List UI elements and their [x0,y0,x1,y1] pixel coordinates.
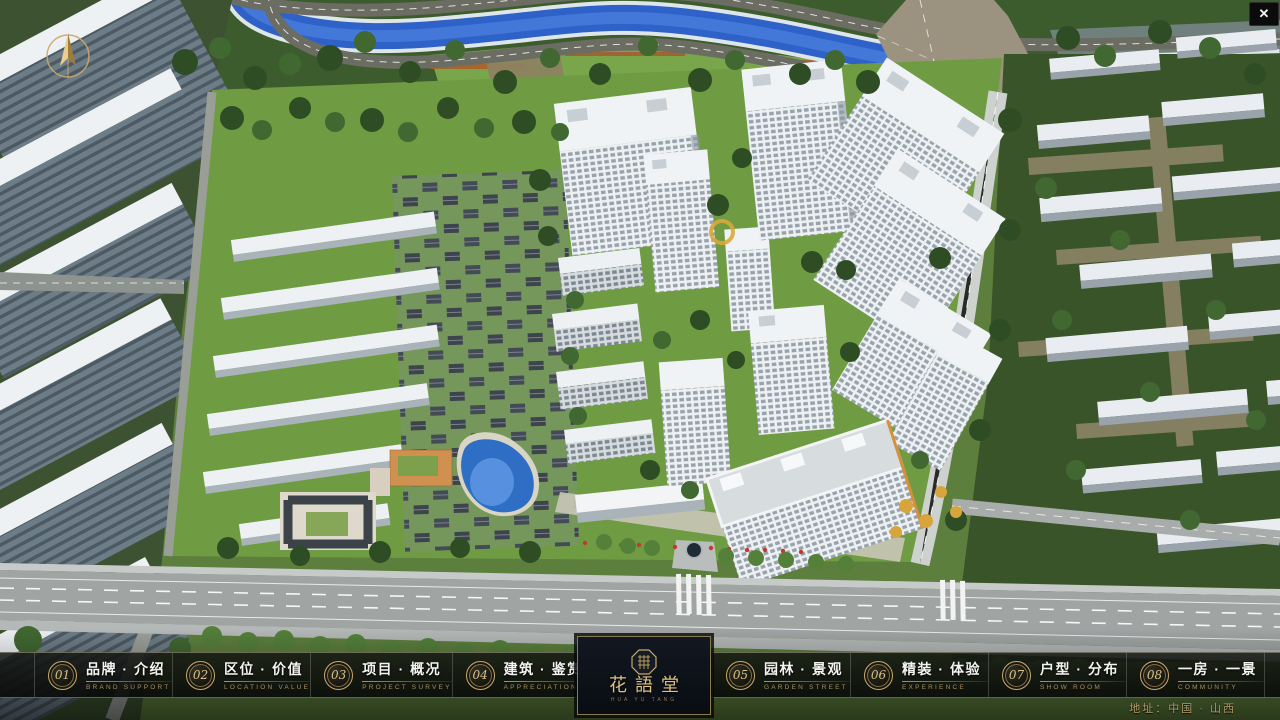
nav-group-right: 05 园林 · 景观GARDEN STREET 06 精装 · 体验EXPERI… [712,653,1280,697]
gold-rule [764,681,850,682]
nav-item-brand[interactable]: 01 品牌 · 介绍BRAND SUPPORT [34,653,172,697]
nav-item-garden[interactable]: 05 园林 · 景观GARDEN STREET [712,653,850,697]
nav-label-cn: 区位 · 价值 [224,659,310,679]
nav-item-views[interactable]: 08 一房 · 一景COMMUNITY [1126,653,1265,697]
nav-badge-06: 06 [864,661,893,690]
nav-label-cn: 精装 · 体验 [902,659,988,679]
gold-rule [1040,681,1126,682]
nav-badge-02: 02 [186,661,215,690]
gold-rule [902,681,988,682]
nav-label-cn: 户型 · 分布 [1040,659,1126,679]
logo-title: 花語堂 [601,677,687,695]
address-text: 地址：中国 · 山西 [1129,700,1236,716]
presentation-app: ✕ 01 品牌 · 介绍BRAND SUPPORT 02 区位 · 价值LOCA… [0,0,1280,720]
entrance-fountain [686,542,702,558]
nav-label-cn: 园林 · 景观 [764,659,850,679]
nav-label-cn: 品牌 · 介绍 [86,659,172,679]
nav-badge-01: 01 [48,661,77,690]
seal-icon [631,649,657,675]
gold-rule [86,681,172,682]
nav-group-left: 01 品牌 · 介绍BRAND SUPPORT 02 区位 · 价值LOCATI… [0,653,576,697]
nav-label-en: LOCATION VALUE [224,684,310,691]
nav-label-en: BRAND SUPPORT [86,684,172,691]
nav-badge-07: 07 [1002,661,1031,690]
nav-item-architecture[interactable]: 04 建筑 · 鉴赏APPRECIATION [452,653,590,697]
masterplan-render[interactable] [0,0,1280,720]
nav-label-cn: 项目 · 概况 [362,659,451,679]
nav-label-en: GARDEN STREET [764,684,850,691]
nav-badge-04: 04 [466,661,495,690]
nav-badge-03: 03 [324,661,353,690]
nav-badge-08: 08 [1140,661,1169,690]
nav-label-en: EXPERIENCE [902,684,988,691]
project-logo: 花語堂 HUA YU TANG [577,636,711,715]
nav-item-location[interactable]: 02 区位 · 价值LOCATION VALUE [172,653,310,697]
nav-label-en: PROJECT SURVEY [362,684,451,691]
gold-rule [224,681,310,682]
nav-label-en: COMMUNITY [1178,684,1264,691]
nav-label-cn: 一房 · 一景 [1178,659,1264,679]
nav-label-en: SHOW ROOM [1040,684,1126,691]
gold-rule [1178,681,1264,682]
nav-item-floorplans[interactable]: 07 户型 · 分布SHOW ROOM [988,653,1126,697]
logo-subtitle: HUA YU TANG [611,697,677,703]
nav-item-project[interactable]: 03 项目 · 概况PROJECT SURVEY [310,653,451,697]
close-button[interactable]: ✕ [1249,2,1279,26]
nav-item-interior[interactable]: 06 精装 · 体验EXPERIENCE [850,653,988,697]
gold-rule [362,681,451,682]
nav-badge-05: 05 [726,661,755,690]
